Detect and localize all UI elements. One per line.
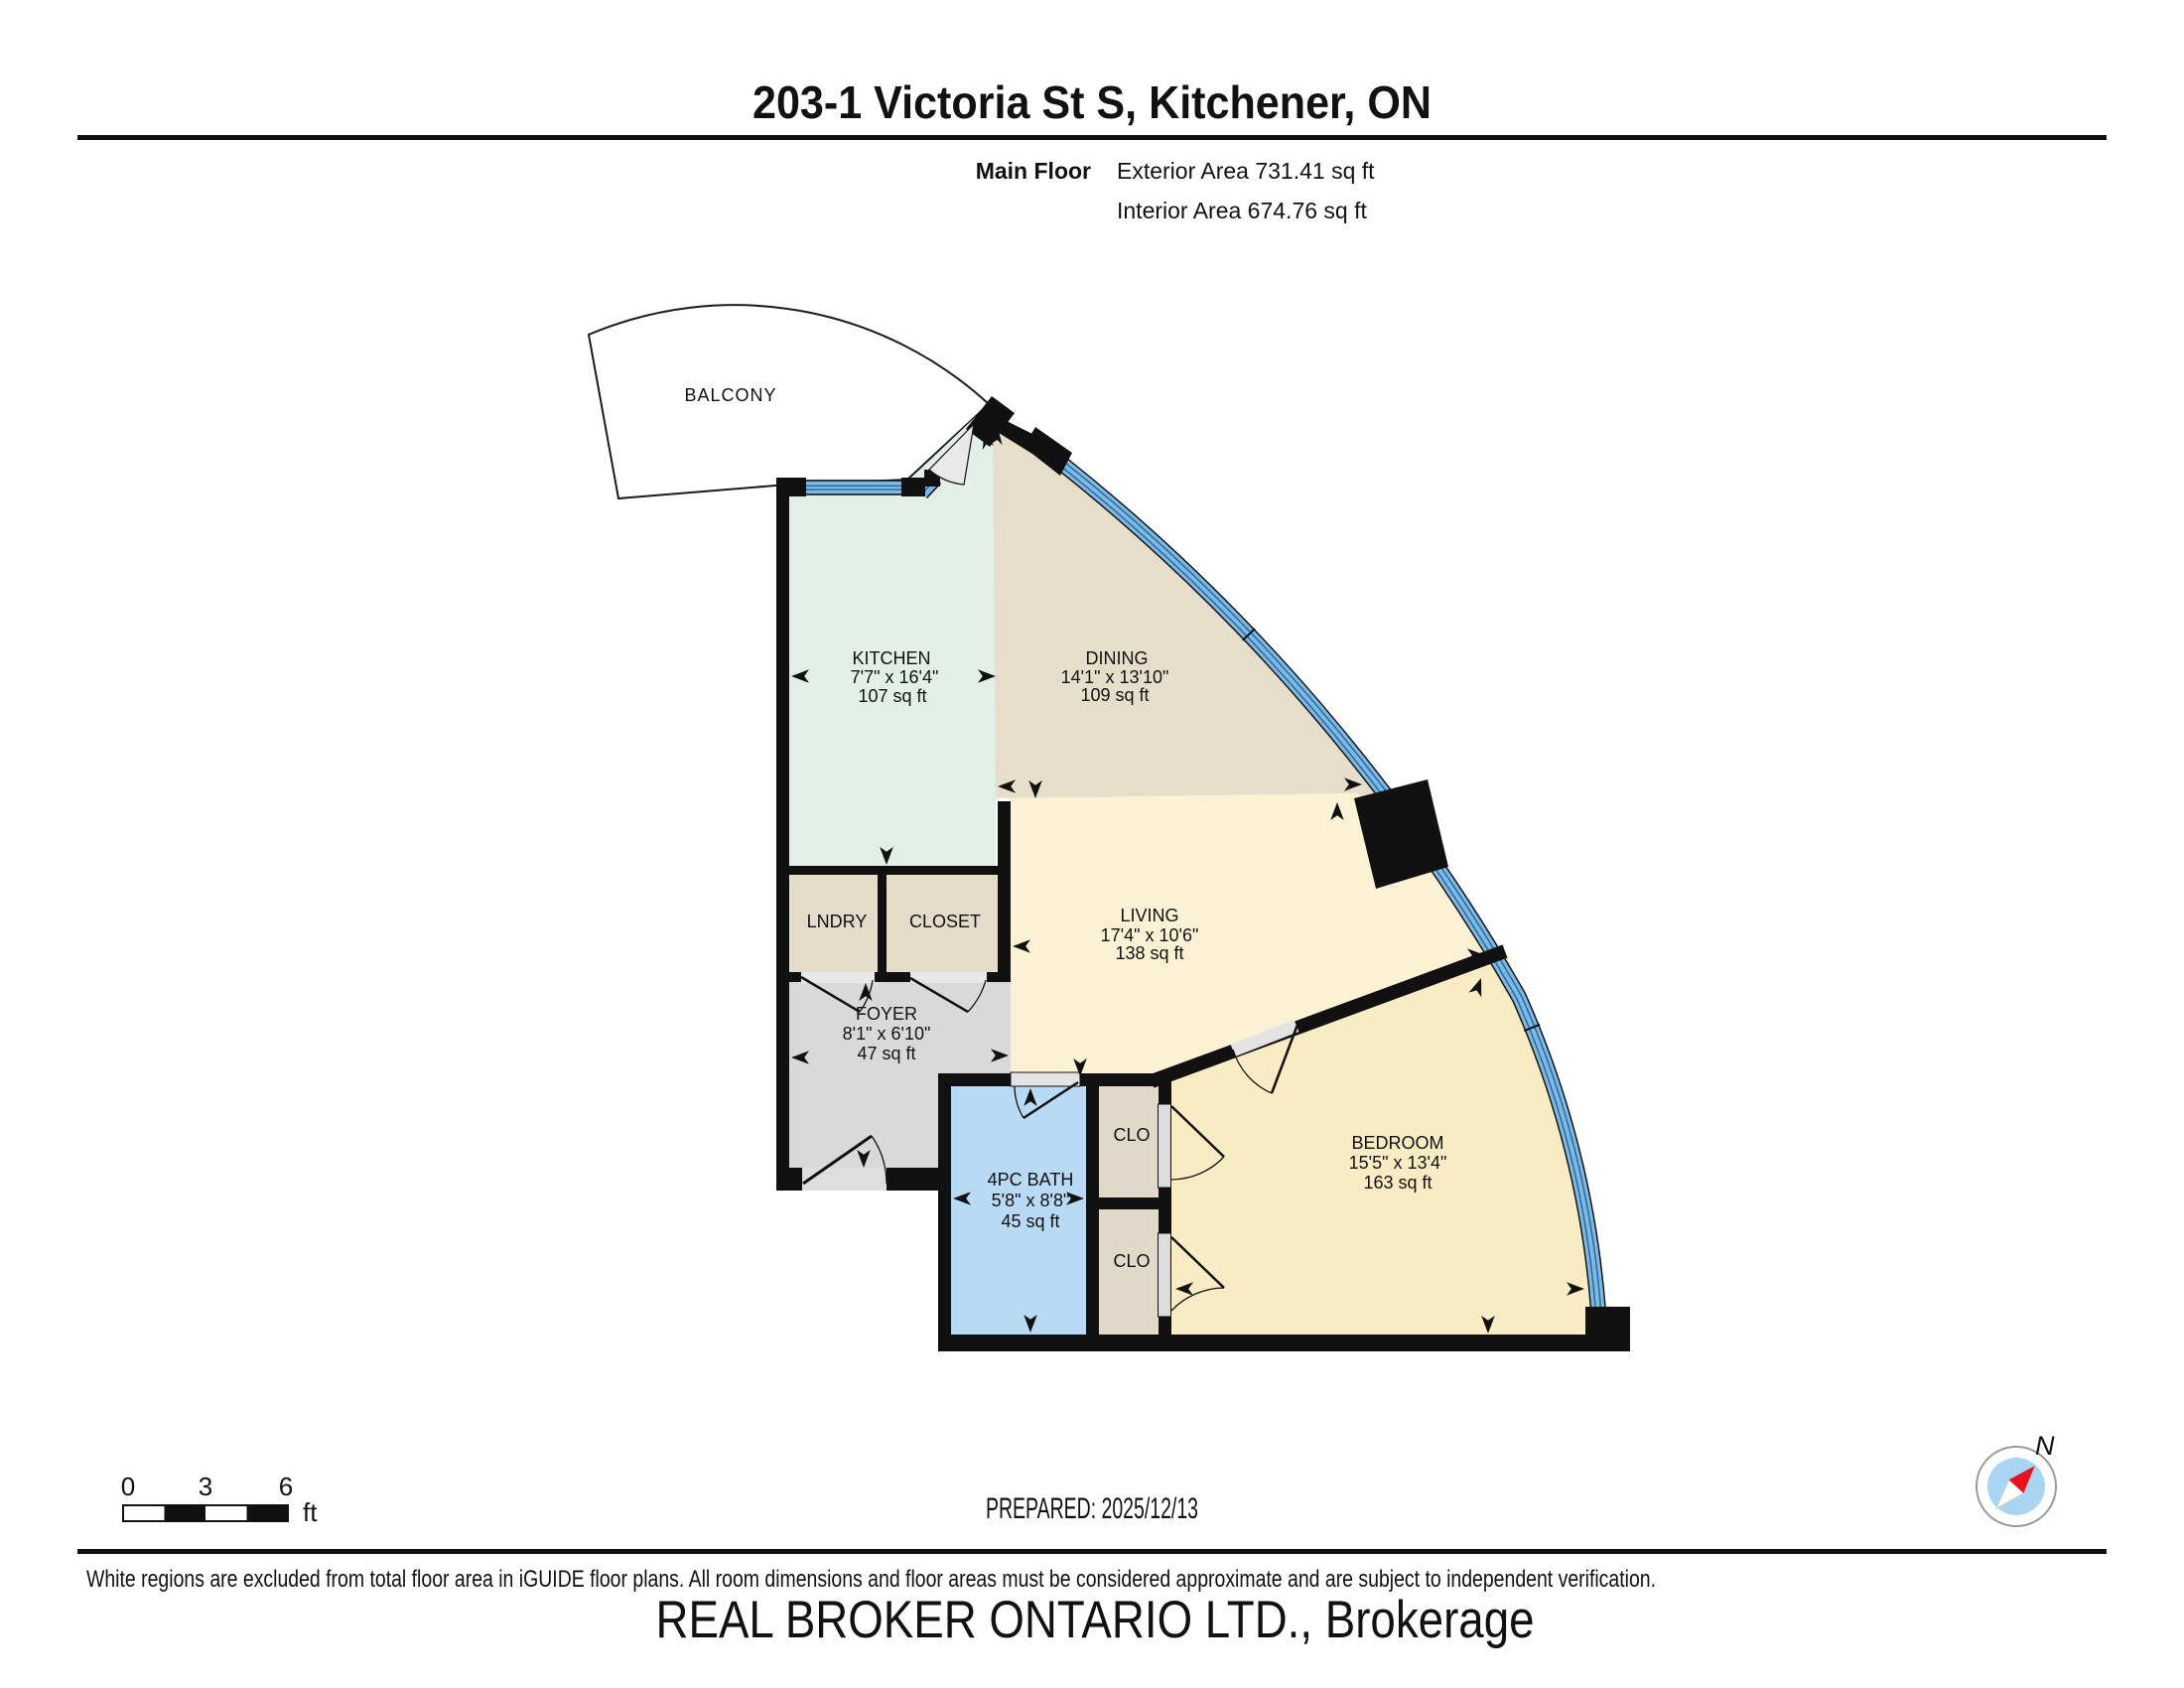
svg-text:6: 6 [279, 1472, 293, 1501]
svg-text:8'1" x 6'10": 8'1" x 6'10" [843, 1024, 931, 1044]
svg-text:4PC BATH: 4PC BATH [988, 1170, 1074, 1190]
svg-text:N: N [2035, 1431, 2055, 1461]
svg-text:REAL BROKER ONTARIO LTD., Brok: REAL BROKER ONTARIO LTD., Brokerage [656, 1591, 1535, 1649]
svg-text:Interior Area 674.76 sq ft: Interior Area 674.76 sq ft [1117, 198, 1367, 223]
svg-text:47 sq ft: 47 sq ft [857, 1044, 915, 1063]
svg-text:7'7" x 16'4": 7'7" x 16'4" [851, 667, 939, 687]
svg-text:CLOSET: CLOSET [909, 912, 981, 931]
svg-text:DINING: DINING [1086, 648, 1149, 668]
svg-text:15'5" x 13'4": 15'5" x 13'4" [1349, 1153, 1447, 1173]
svg-text:0: 0 [121, 1472, 135, 1501]
svg-text:3: 3 [199, 1472, 212, 1501]
svg-text:LNDRY: LNDRY [807, 912, 868, 931]
svg-text:163 sq ft: 163 sq ft [1363, 1173, 1432, 1193]
svg-text:107 sq ft: 107 sq ft [858, 686, 926, 706]
svg-text:White regions are excluded fro: White regions are excluded from total fl… [86, 1566, 1656, 1593]
svg-text:KITCHEN: KITCHEN [852, 648, 930, 668]
svg-text:PREPARED: 2025/12/13: PREPARED: 2025/12/13 [986, 1492, 1198, 1525]
svg-text:5'8" x 8'8": 5'8" x 8'8" [992, 1191, 1070, 1210]
svg-text:45 sq ft: 45 sq ft [1001, 1211, 1059, 1231]
svg-text:FOYER: FOYER [856, 1004, 917, 1024]
svg-text:CLO: CLO [1113, 1251, 1150, 1271]
svg-text:17'4" x 10'6": 17'4" x 10'6" [1101, 925, 1199, 945]
svg-text:Exterior Area 731.41 sq ft: Exterior Area 731.41 sq ft [1117, 158, 1375, 184]
svg-text:BEDROOM: BEDROOM [1351, 1133, 1443, 1153]
svg-text:14'1" x 13'10": 14'1" x 13'10" [1061, 667, 1169, 687]
svg-text:BALCONY: BALCONY [684, 385, 776, 405]
svg-text:ft: ft [303, 1497, 318, 1527]
svg-text:LIVING: LIVING [1120, 906, 1178, 925]
svg-text:138 sq ft: 138 sq ft [1115, 943, 1183, 963]
svg-text:109 sq ft: 109 sq ft [1080, 685, 1149, 705]
svg-text:CLO: CLO [1113, 1125, 1150, 1145]
svg-text:Main Floor: Main Floor [976, 158, 1091, 184]
svg-text:203-1 Victoria St S, Kitchener: 203-1 Victoria St S, Kitchener, ON [752, 76, 1432, 128]
